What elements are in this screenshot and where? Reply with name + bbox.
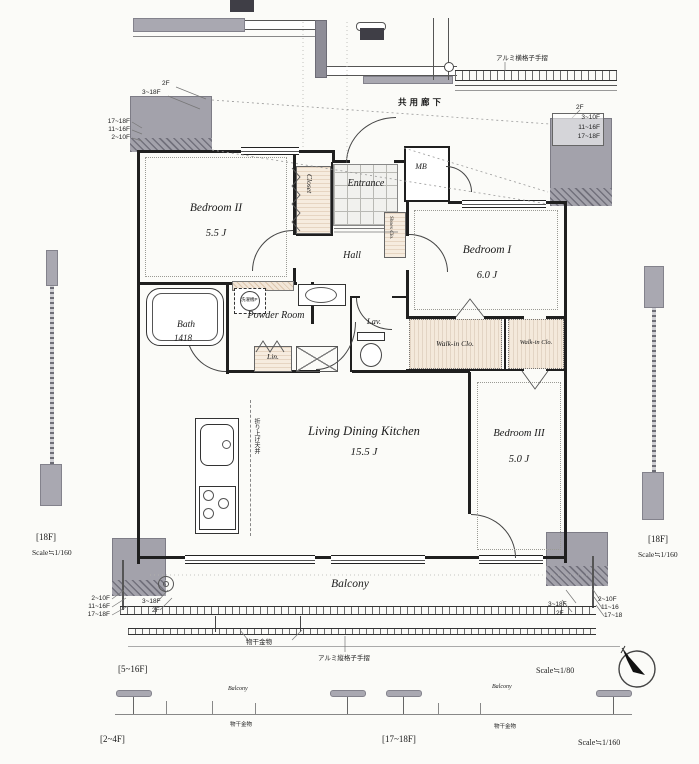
section-tick <box>480 703 481 714</box>
balcony-end <box>122 560 124 610</box>
callout: 11~16F <box>74 603 110 610</box>
vent-fan-hub <box>163 581 169 587</box>
section-note: 物干金物 <box>494 722 516 730</box>
right-section-line <box>652 308 656 472</box>
bedroom1-size: 6.0 J <box>477 270 497 281</box>
callout: 17~18F <box>96 118 130 125</box>
eaves-rail <box>128 628 596 635</box>
bedroom1-label: Bedroom I <box>463 244 511 256</box>
legend-right-scale: Scale≒1/160 <box>638 550 678 559</box>
wall <box>564 201 567 563</box>
toilet-tank <box>357 332 385 341</box>
bath-label: Bath <box>177 320 195 330</box>
legend-left-floor: [18F] <box>36 532 56 542</box>
top-wall-section <box>133 18 245 32</box>
walkin-closet2-label: Walk-in Clo. <box>520 339 553 346</box>
callout: 17~18F <box>556 133 600 140</box>
section-tick <box>166 701 167 714</box>
compass-north-icon <box>612 642 660 692</box>
section-stem <box>613 697 614 715</box>
laundry-hardware-label: 物干金物 <box>246 636 272 646</box>
wall <box>406 200 409 236</box>
legend-left-scale: Scale≒1/160 <box>32 548 72 557</box>
callout: 17~18F <box>74 611 110 618</box>
powder-sink-bowl <box>305 287 337 303</box>
powder-label: Powder Room <box>248 310 305 321</box>
bedroom2-size: 5.5 J <box>206 228 226 239</box>
closet-label: Closet <box>305 174 314 193</box>
balcony-label: Balcony <box>331 578 369 590</box>
wall <box>296 234 333 236</box>
wall <box>226 282 229 374</box>
callout: 2F <box>162 80 170 87</box>
callout: 2F <box>152 607 160 614</box>
entrance-door-arc <box>346 117 396 163</box>
wall <box>406 270 409 318</box>
floor-edge <box>414 210 558 310</box>
window <box>462 200 546 208</box>
callout: 2~10F <box>96 134 130 141</box>
storage-xbox <box>296 346 338 372</box>
bedroom3-size: 5.0 J <box>509 454 529 465</box>
entrance-label: Entrance <box>348 178 385 189</box>
legend-range-b: [2~4F] <box>100 734 125 744</box>
rail-underline <box>455 85 617 86</box>
callout: 3~10F <box>556 114 600 121</box>
left-section-line <box>50 286 54 464</box>
washer-label: 洗濯機P <box>241 297 258 303</box>
lin-label: Lin. <box>267 352 279 361</box>
mb-label: MB <box>415 162 427 171</box>
horizontal-lattice-rail <box>455 70 617 81</box>
sliding-window <box>331 555 425 564</box>
wall <box>137 150 241 153</box>
balcony-end <box>592 556 594 608</box>
stove-burner <box>203 490 214 501</box>
eaves-line <box>128 646 620 647</box>
floor-plan: アルミ横格子手摺 共用廊下 2F 3~18F 17~18F 11~16F 2~1… <box>0 0 699 764</box>
rail-horizontal-label: アルミ横格子手摺 <box>496 52 548 62</box>
rail-underline <box>455 90 617 91</box>
bath-size: 1418 <box>174 333 192 343</box>
kitchen-faucet <box>222 440 231 449</box>
section-cap <box>116 690 152 697</box>
wall <box>406 369 524 371</box>
legend-scale-80: Scale≒1/80 <box>536 666 574 675</box>
rail-post-circle <box>444 62 454 72</box>
ldk-size: 15.5 J <box>351 446 378 458</box>
callout: 11~16F <box>556 124 600 131</box>
section-tick <box>438 703 439 714</box>
callout: 3~18F <box>142 89 161 96</box>
coffered-ceiling-label: 折り上げ天井 <box>252 418 261 454</box>
section-balcony-label: Balcony <box>228 686 248 692</box>
coffered-ceiling-line <box>250 400 251 536</box>
wall <box>468 372 471 514</box>
window <box>241 147 299 155</box>
top-wall-elbow <box>315 20 327 78</box>
meter-box <box>404 146 450 202</box>
wall <box>543 556 567 559</box>
wall <box>137 150 140 564</box>
corridor-label: 共用廊下 <box>398 96 444 108</box>
bedroom3-label: Bedroom III <box>493 428 544 439</box>
callout: 2F <box>556 610 564 617</box>
legend-right-floor: [18F] <box>648 534 668 544</box>
ldk-label: Living Dining Kitchen <box>308 424 420 439</box>
callout: 3~18F <box>142 598 161 605</box>
left-section-block <box>40 464 62 506</box>
wall <box>297 150 335 153</box>
callout: 11~16 <box>601 604 619 611</box>
callout: 2~10F <box>74 595 110 602</box>
stove-burner <box>218 498 229 509</box>
sliding-window <box>185 555 315 564</box>
section-stem <box>133 697 134 715</box>
legend-range-c: [17~18F] <box>382 734 416 744</box>
wall <box>504 318 506 370</box>
section-note: 物干金物 <box>230 720 252 728</box>
section-cut-mark <box>230 0 254 12</box>
walkin-closet1-label: Walk-in Clo. <box>436 339 474 348</box>
section-tick <box>255 703 256 714</box>
shoes-closet-label: Shoes Clo. <box>388 216 394 240</box>
rail-vertical-label: アルミ縦格子手摺 <box>318 652 370 662</box>
section-baseline <box>115 714 632 715</box>
lav-label: Lav. <box>367 316 381 326</box>
wall <box>137 556 187 559</box>
section-cap <box>386 690 422 697</box>
hall-label: Hall <box>343 250 361 261</box>
callout: 2F <box>576 104 584 111</box>
toilet-bowl <box>360 343 382 367</box>
section-cut-mark <box>360 28 384 40</box>
callout: 11~16F <box>96 126 130 133</box>
right-section-block <box>644 266 664 308</box>
section-stem <box>347 697 348 715</box>
wall-lines <box>133 36 315 37</box>
section-balcony-label: Balcony <box>492 684 512 690</box>
callout: 17~18 <box>604 612 622 619</box>
callout: 3~18F <box>548 601 567 608</box>
legend-scale-160: Scale≒1/160 <box>578 738 620 747</box>
balcony-rail <box>120 606 596 615</box>
bedroom2-label: Bedroom II <box>190 202 242 214</box>
stove-burner <box>203 508 214 519</box>
right-section-block <box>642 472 664 520</box>
section-cap <box>330 690 366 697</box>
mb-door-arc <box>446 166 472 192</box>
section-stem <box>403 697 404 715</box>
section-tick <box>212 701 213 714</box>
legend-range-a: [5~16F] <box>118 664 147 674</box>
floor-edge <box>477 382 561 550</box>
left-section-cap <box>46 250 58 286</box>
wall <box>546 369 567 371</box>
section-cap <box>596 690 632 697</box>
floor-edge <box>145 157 287 277</box>
pillar-hatch <box>546 566 608 586</box>
callout: 2~10F <box>598 596 617 603</box>
top-rail-channel <box>245 20 317 30</box>
